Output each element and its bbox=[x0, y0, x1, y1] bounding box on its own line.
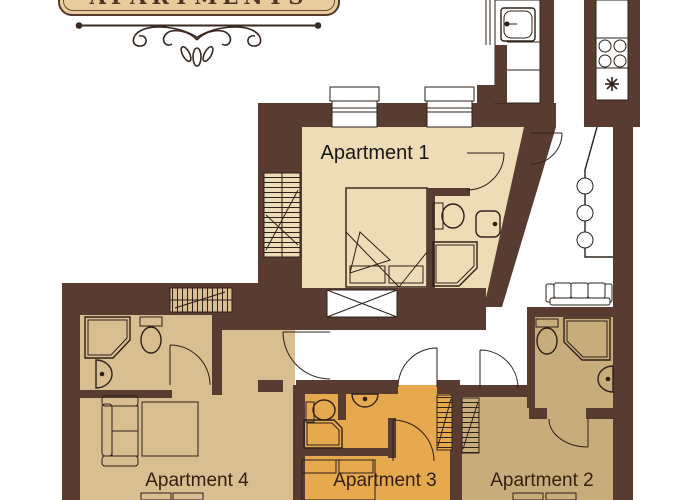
defrost-star-icon bbox=[605, 77, 619, 91]
apartment-2-label: Apartment 2 bbox=[457, 470, 627, 492]
bar-counter bbox=[577, 127, 613, 257]
radiator-icon bbox=[437, 395, 452, 450]
divider-line bbox=[76, 22, 322, 29]
floor-plan-svg bbox=[0, 0, 700, 500]
apartment-1-label: Apartment 1 bbox=[290, 142, 460, 165]
sofa-icon bbox=[546, 283, 612, 305]
scroll-flourish-icon bbox=[133, 27, 260, 66]
door-arc bbox=[398, 348, 437, 387]
door-arc bbox=[480, 350, 518, 388]
kitchen-counter-right bbox=[596, 0, 628, 100]
radiator-icon bbox=[462, 398, 479, 453]
radiator-icon bbox=[170, 288, 232, 312]
floor-plan-page: APARTMENTS bbox=[0, 0, 700, 500]
apartment-3-label: Apartment 3 bbox=[300, 470, 470, 492]
apartment-4-label: Apartment 4 bbox=[112, 470, 282, 492]
bar-stool-icon bbox=[577, 232, 593, 248]
radiator-icon bbox=[264, 173, 300, 257]
bar-stool-icon bbox=[577, 205, 593, 221]
corridor-door-arcs bbox=[283, 332, 518, 388]
bar-stool-icon bbox=[577, 178, 593, 194]
wardrobe-x-box-icon bbox=[327, 290, 397, 317]
